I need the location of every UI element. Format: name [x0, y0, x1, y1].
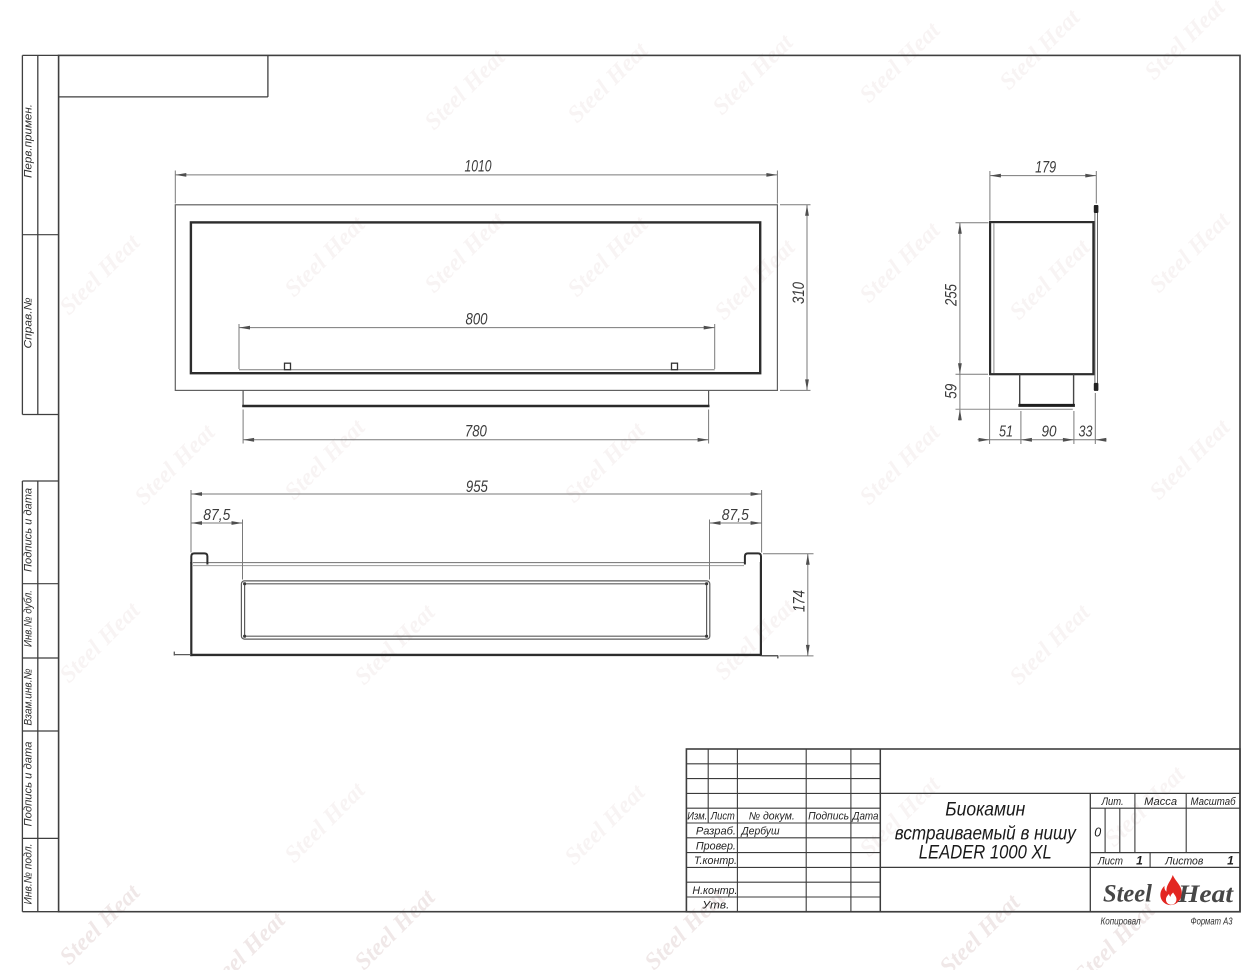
svg-text:Steel Heat: Steel Heat [55, 597, 146, 688]
svg-text:Провер.: Провер. [696, 840, 736, 852]
svg-text:Heat: Heat [1177, 881, 1234, 908]
svg-text:Steel Heat: Steel Heat [55, 879, 146, 970]
svg-text:1: 1 [1227, 853, 1234, 867]
svg-text:Steel Heat: Steel Heat [280, 211, 371, 302]
svg-text:Масса: Масса [1144, 796, 1177, 808]
svg-text:Steel Heat: Steel Heat [420, 207, 511, 298]
svg-text:Дата: Дата [852, 810, 879, 822]
svg-text:59: 59 [943, 384, 961, 399]
svg-text:Steel Heat: Steel Heat [1145, 207, 1236, 298]
svg-text:Взам.инв.№: Взам.инв.№ [23, 668, 35, 725]
svg-text:Steel Heat: Steel Heat [350, 884, 441, 970]
svg-text:Листов: Листов [1164, 855, 1203, 867]
svg-text:Steel Heat: Steel Heat [420, 44, 511, 135]
svg-text:Steel Heat: Steel Heat [995, 4, 1086, 95]
svg-text:Утв.: Утв. [701, 900, 729, 912]
svg-text:Копировал: Копировал [1101, 916, 1141, 928]
svg-text:Подпись: Подпись [808, 810, 849, 822]
svg-text:LEADER 1000 XL: LEADER 1000 XL [919, 842, 1052, 864]
svg-text:Steel Heat: Steel Heat [710, 594, 801, 685]
svg-text:0: 0 [1094, 826, 1101, 840]
svg-text:Steel Heat: Steel Heat [855, 17, 946, 108]
svg-text:Изм.: Изм. [687, 810, 707, 822]
svg-text:Лит.: Лит. [1101, 796, 1124, 808]
svg-text:Steel Heat: Steel Heat [935, 889, 1026, 970]
svg-text:Steel Heat: Steel Heat [563, 211, 654, 302]
svg-text:Steel Heat: Steel Heat [560, 779, 651, 870]
svg-text:Steel Heat: Steel Heat [1070, 897, 1161, 970]
svg-text:Подпись и дата: Подпись и дата [23, 742, 35, 827]
svg-text:Steel Heat: Steel Heat [855, 217, 946, 308]
svg-text:Steel Heat: Steel Heat [280, 777, 371, 868]
svg-text:Steel Heat: Steel Heat [1005, 234, 1096, 325]
svg-text:Steel Heat: Steel Heat [55, 229, 146, 320]
svg-text:90: 90 [1042, 424, 1057, 441]
svg-text:Лист: Лист [1097, 855, 1123, 867]
svg-text:Н.контр.: Н.контр. [692, 885, 737, 897]
svg-text:Формат А3: Формат А3 [1191, 916, 1233, 928]
svg-text:Инв.№ дубл.: Инв.№ дубл. [23, 590, 35, 647]
svg-text:179: 179 [1035, 158, 1056, 176]
svg-text:800: 800 [466, 310, 489, 328]
svg-text:33: 33 [1079, 424, 1093, 441]
svg-text:Steel Heat: Steel Heat [280, 414, 371, 505]
svg-text:Разраб.: Разраб. [696, 826, 736, 838]
svg-text:Steel Heat: Steel Heat [1005, 599, 1096, 690]
svg-text:Дербуш: Дербуш [740, 826, 780, 838]
svg-text:51: 51 [999, 424, 1013, 441]
svg-text:Steel Heat: Steel Heat [563, 37, 654, 128]
svg-text:№ докум.: № докум. [749, 810, 795, 822]
svg-text:Справ.№: Справ.№ [23, 297, 35, 348]
svg-text:Steel Heat: Steel Heat [710, 234, 801, 325]
svg-text:Масштаб: Масштаб [1191, 796, 1237, 808]
svg-text:255: 255 [943, 283, 961, 306]
svg-text:Лист: Лист [710, 810, 735, 822]
svg-text:780: 780 [465, 423, 488, 441]
svg-text:310: 310 [790, 281, 808, 304]
svg-text:Steel Heat: Steel Heat [708, 29, 799, 120]
svg-text:Т.контр.: Т.контр. [694, 855, 737, 867]
svg-text:Перв.примен.: Перв.примен. [23, 104, 35, 178]
svg-text:Инв.№ подл.: Инв.№ подл. [23, 844, 35, 905]
svg-text:Steel: Steel [1103, 881, 1152, 908]
svg-text:87,5: 87,5 [203, 507, 230, 524]
svg-text:1: 1 [1136, 853, 1143, 867]
svg-text:955: 955 [466, 478, 489, 496]
svg-text:Steel Heat: Steel Heat [1145, 414, 1236, 505]
svg-text:Steel Heat: Steel Heat [560, 417, 651, 508]
svg-text:174: 174 [791, 590, 809, 612]
svg-text:Steel Heat: Steel Heat [855, 419, 946, 510]
svg-text:Steel Heat: Steel Heat [200, 907, 291, 970]
svg-text:Steel Heat: Steel Heat [1140, 0, 1231, 85]
svg-text:Биокамин: Биокамин [945, 799, 1025, 821]
svg-text:Подпись и дата: Подпись и дата [23, 488, 35, 572]
svg-text:1010: 1010 [465, 158, 493, 176]
svg-text:Steel Heat: Steel Heat [130, 419, 221, 510]
svg-text:87,5: 87,5 [722, 507, 749, 524]
svg-text:Steel Heat: Steel Heat [350, 599, 441, 690]
